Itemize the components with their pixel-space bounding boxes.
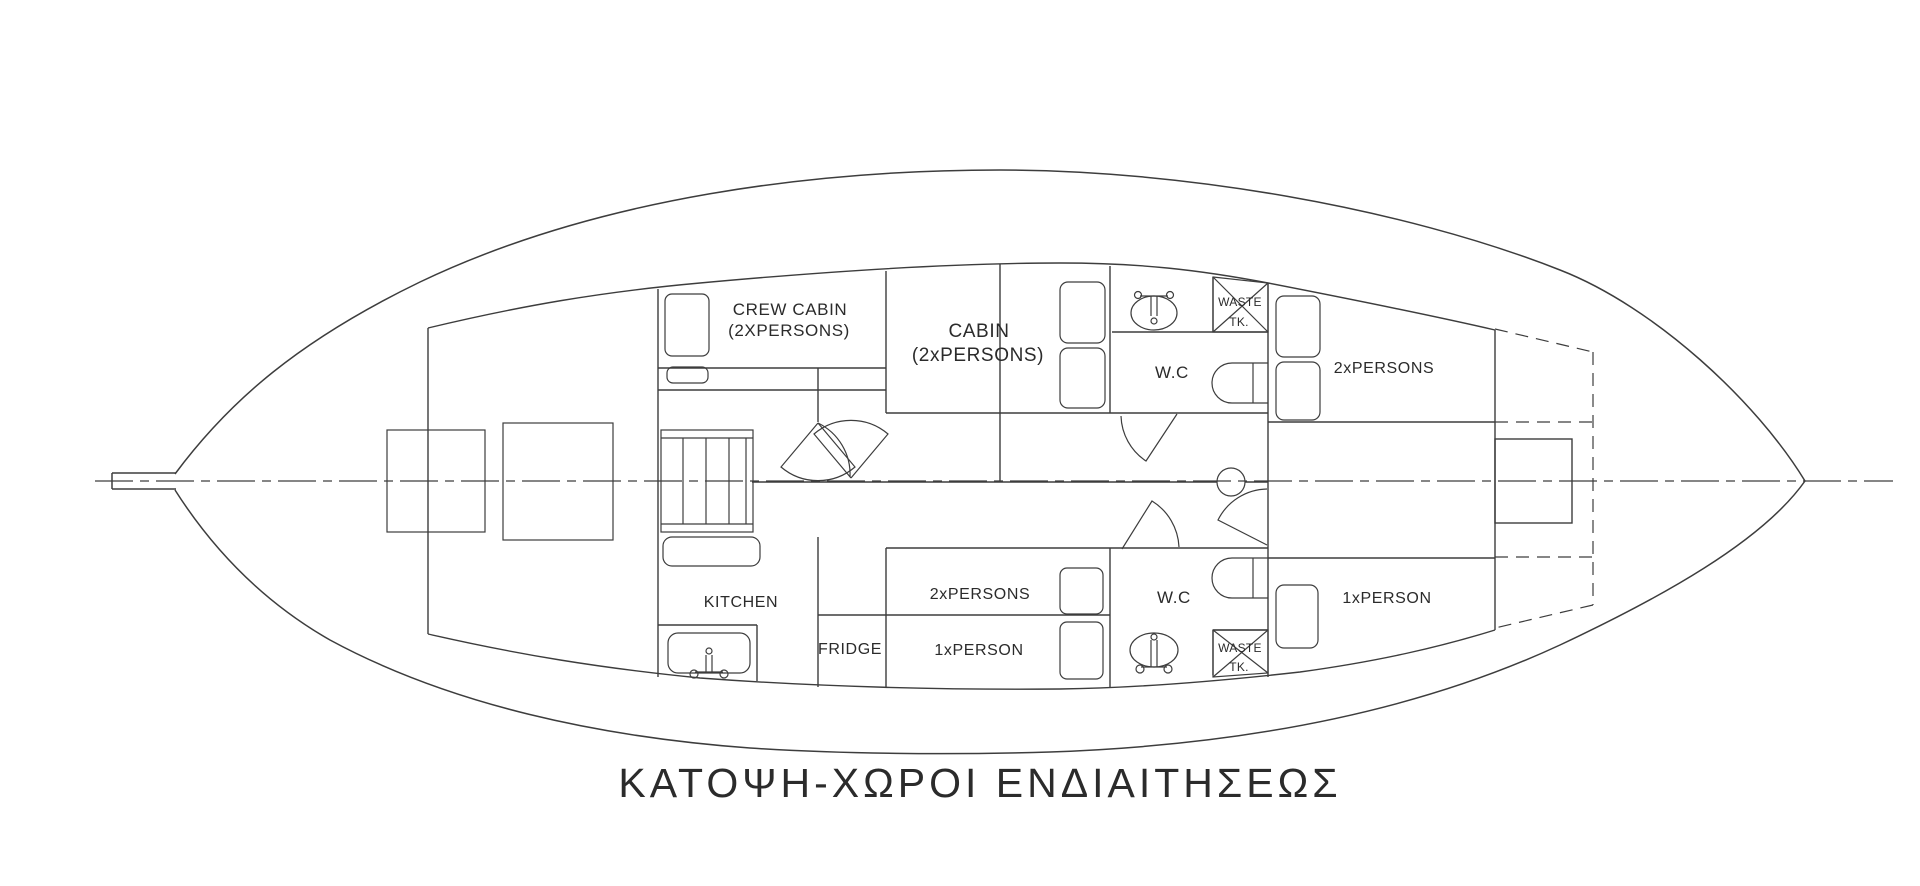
label-wc-lower: W.C xyxy=(1157,588,1191,607)
kitchen-sink-symbol xyxy=(668,633,750,678)
berth-symbol xyxy=(1276,362,1320,420)
label-wc-upper: W.C xyxy=(1155,363,1189,382)
berth-symbol xyxy=(1060,348,1105,408)
berth-symbol xyxy=(1060,568,1103,614)
berth-symbol xyxy=(1060,282,1105,343)
wc-sink-upper-symbol xyxy=(1131,292,1177,331)
label-kitchen: KITCHEN xyxy=(704,594,778,611)
door-swing-companionway-left xyxy=(781,423,855,481)
label-waste-tank-upper-1: WASTE xyxy=(1218,295,1262,309)
label-waste-tank-upper-2: TK. xyxy=(1229,315,1249,329)
berth-symbol xyxy=(1276,296,1320,357)
label-cabin-mid-single: 1xPERSON xyxy=(934,642,1023,659)
drawing-title: ΚΑΤΟΨΗ-ΧΩΡΟΙ ΕΝΔΙΑΙΤΗΣΕΩΣ xyxy=(618,760,1341,806)
boat-deck-plan: CREW CABIN (2XPERSONS) CABIN (2xPERSONS)… xyxy=(0,0,1920,886)
toilet-lower-symbol xyxy=(1212,558,1268,598)
toilet-upper-symbol xyxy=(1212,363,1268,403)
hull-outline xyxy=(112,170,1805,754)
label-cabin-fwd-upper: 2xPERSONS xyxy=(1334,360,1435,377)
door-swing-companionway-right xyxy=(814,420,888,478)
label-fridge: FRIDGE xyxy=(818,641,882,658)
label-main-cabin: CABIN xyxy=(948,321,1009,342)
mast-circle xyxy=(1217,468,1245,496)
label-cabin-fwd-lower: 1xPERSON xyxy=(1342,590,1431,607)
kitchen-counter-symbol xyxy=(663,537,760,566)
label-cabin-mid-double: 2xPERSONS xyxy=(930,586,1031,603)
door-swing-wc-lower xyxy=(1122,501,1179,549)
bow-dashed-outline xyxy=(1495,329,1593,628)
shelf-symbol xyxy=(667,367,708,383)
wc-sink-lower-symbol xyxy=(1130,633,1178,673)
door-swing-fwd-cabin xyxy=(1218,489,1267,545)
label-main-cabin-capacity: (2xPERSONS) xyxy=(912,345,1044,366)
door-swing-cabin xyxy=(818,423,850,477)
label-crew-cabin: CREW CABIN xyxy=(733,300,848,319)
door-swing-wc-upper xyxy=(1121,414,1177,461)
berth-symbol xyxy=(665,294,709,356)
label-crew-cabin-capacity: (2XPERSONS) xyxy=(728,321,850,340)
label-waste-tank-lower-1: WASTE xyxy=(1218,641,1262,655)
label-waste-tank-lower-2: TK. xyxy=(1229,660,1249,674)
berth-symbol xyxy=(1060,622,1103,679)
berth-symbol xyxy=(1276,585,1318,648)
